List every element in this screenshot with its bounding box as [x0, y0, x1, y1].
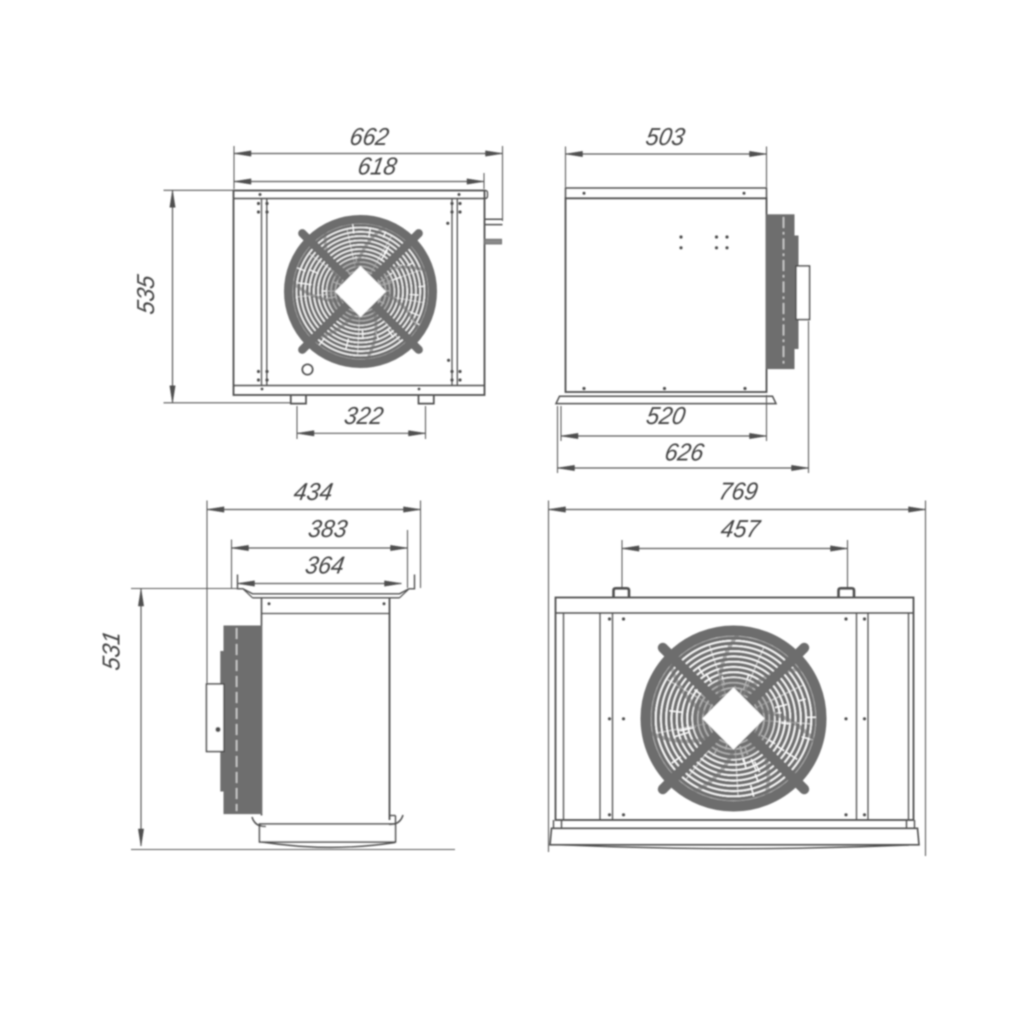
svg-text:503: 503 — [644, 124, 688, 152]
svg-text:618: 618 — [356, 153, 400, 181]
svg-text:520: 520 — [644, 403, 688, 431]
svg-text:322: 322 — [342, 403, 385, 431]
svg-text:364: 364 — [303, 552, 346, 580]
svg-text:662: 662 — [348, 124, 391, 152]
svg-text:535: 535 — [133, 272, 161, 316]
svg-text:383: 383 — [306, 516, 350, 544]
svg-text:434: 434 — [292, 479, 335, 507]
svg-text:626: 626 — [663, 439, 707, 467]
svg-text:769: 769 — [717, 478, 760, 506]
svg-text:457: 457 — [719, 516, 764, 544]
svg-text:531: 531 — [98, 629, 126, 672]
